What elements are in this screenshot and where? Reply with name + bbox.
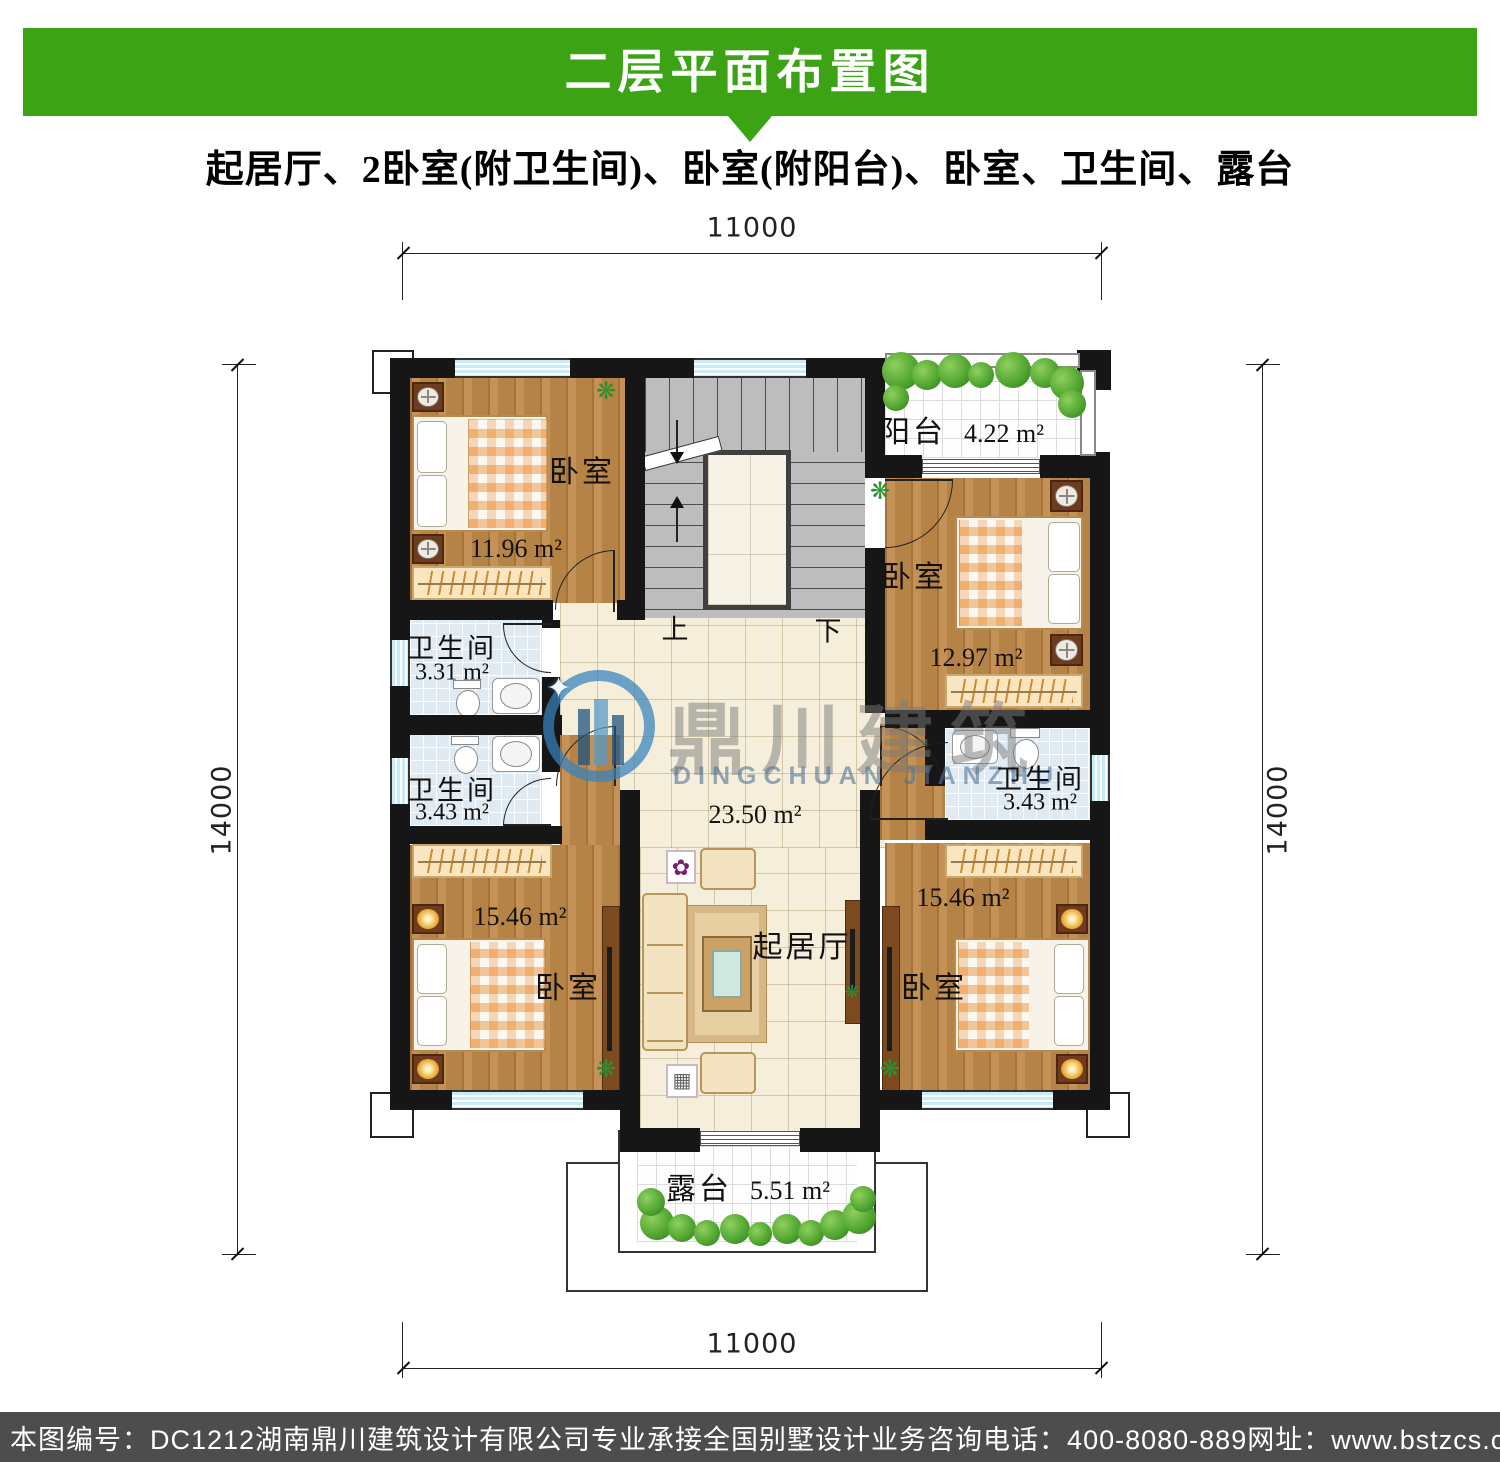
bed-blanket (958, 942, 1029, 1048)
wall-segment (583, 1090, 640, 1110)
page-title: 二层平面布置图 (23, 28, 1477, 116)
room-area-bathroom-right: 3.43 m² (1003, 790, 1077, 817)
logo-bar (594, 699, 608, 765)
watermark-logo: ✦ (543, 670, 655, 782)
lamp-glow-icon (417, 909, 439, 929)
wall-segment (390, 600, 553, 620)
sink-basin (500, 683, 532, 709)
bush (938, 354, 972, 388)
pillow (417, 475, 447, 527)
extension-line (222, 1254, 256, 1255)
door-leaf (613, 550, 615, 612)
logo-bar (612, 715, 624, 765)
wardrobe (412, 844, 552, 878)
nightstand (412, 534, 444, 564)
tv-screen (607, 947, 612, 1051)
window (694, 358, 806, 378)
window (1090, 755, 1110, 801)
room-area-bedroom-right: 12.97 m² (929, 643, 1022, 673)
room-name-bedroom-bottom-right: 卧室 (901, 963, 967, 1007)
bush (1058, 390, 1086, 418)
wardrobe-rod (951, 861, 1077, 863)
ceiling-lamp-icon (417, 539, 439, 559)
nightstand (1056, 1054, 1088, 1084)
armchair (700, 1052, 756, 1094)
stairs-up-label: 上 (662, 608, 689, 647)
flower-stand: ✿ (666, 850, 696, 884)
bush (748, 1222, 772, 1246)
balcony-label: 阳台 4.22 m² (880, 407, 1044, 451)
cabinet: ▦ (666, 1064, 698, 1098)
dimension-left: 14000 (207, 765, 238, 856)
stair-void (703, 450, 791, 610)
pillow (417, 996, 447, 1046)
pillow (1054, 944, 1084, 994)
nightstand (412, 382, 444, 412)
nightstand (1056, 904, 1088, 934)
plant-icon: ❋ (844, 983, 859, 1001)
title-banner: 二层平面布置图 (23, 28, 1477, 116)
sofa-cushions (647, 898, 683, 1046)
sparkle-icon: ✦ (546, 671, 571, 706)
bush (995, 352, 1031, 388)
room-area-bedroom-bottom-left: 15.46 m² (473, 902, 566, 932)
nightstand (1050, 634, 1083, 666)
toilet-tank (451, 736, 479, 745)
stair-direction-line (676, 420, 678, 454)
dimension-line (237, 365, 238, 1255)
ceiling-lamp-icon (1055, 639, 1078, 661)
sink (492, 736, 540, 772)
nightstand (1050, 480, 1083, 512)
drawing-number: 本图编号：DC1212 (10, 1418, 255, 1457)
wall-segment (390, 1090, 452, 1110)
wall-segment (620, 790, 640, 1135)
bed-blanket (470, 942, 545, 1048)
sliding-door (922, 459, 1040, 474)
wall-segment (625, 358, 645, 620)
phone-number: 咨询电话：400-8080-889 (927, 1418, 1247, 1457)
wardrobe (412, 566, 552, 600)
plant-icon: ❋ (596, 1058, 616, 1082)
wall-segment (865, 455, 922, 478)
dimension-top: 11000 (707, 213, 798, 244)
wardrobe (945, 844, 1083, 878)
dimension-line (403, 253, 1102, 254)
wall-segment (1053, 1090, 1110, 1110)
lamp-glow-icon (1061, 909, 1083, 929)
bush (694, 1220, 720, 1246)
footer-bar: 本图编号：DC1212 湖南鼎川建筑设计有限公司专业承接全国别墅设计业务 咨询电… (0, 1412, 1500, 1462)
pillow (1048, 574, 1080, 624)
bush (968, 362, 994, 388)
flower-icon: ✿ (672, 855, 690, 880)
wall-segment (860, 1090, 922, 1110)
plant-icon: ❋ (880, 1058, 900, 1082)
wall-segment (1040, 455, 1090, 478)
nightstand (412, 1054, 444, 1084)
stair-arrow-down-icon (670, 452, 684, 464)
pillow (1054, 996, 1084, 1046)
stair-direction-line (676, 508, 678, 542)
window (452, 1090, 583, 1110)
stair-treads-top (645, 378, 865, 452)
window (455, 358, 570, 378)
tv-screen (887, 947, 892, 1051)
room-area-terrace: 5.51 m² (750, 1176, 830, 1206)
sofa (642, 893, 688, 1051)
pillow (1048, 522, 1080, 572)
room-area-living: 23.50 m² (708, 800, 801, 830)
room-area-balcony: 4.22 m² (964, 419, 1044, 449)
plant-icon: ❋ (596, 380, 616, 404)
window (922, 1090, 1053, 1110)
room-area-bathroom-left-top: 3.31 m² (415, 660, 489, 687)
pillow (417, 421, 447, 473)
room-summary-subtitle: 起居厅、2卧室(附卫生间)、卧室(附阳台)、卧室、卫生间、露台 (0, 138, 1500, 193)
wall-segment (800, 1128, 880, 1152)
sink-basin (500, 741, 532, 767)
lamp-glow-icon (417, 1059, 439, 1079)
wardrobe-rod (418, 861, 546, 863)
wall-segment (390, 826, 562, 844)
wall-segment (925, 820, 1110, 840)
bed-blanket (959, 520, 1022, 626)
dimension-line (1262, 365, 1263, 1255)
appliance-icon: ▦ (673, 1070, 692, 1092)
bush (850, 1186, 876, 1212)
bush (668, 1214, 696, 1242)
sink (492, 678, 540, 714)
terrace-label: 露台 5.51 m² (666, 1164, 830, 1208)
ceiling-lamp-icon (1055, 485, 1078, 507)
wall-segment (860, 790, 880, 1135)
wall-segment (617, 600, 645, 620)
nightstand (412, 904, 444, 934)
room-area-bathroom-left-bottom: 3.43 m² (415, 800, 489, 827)
floor-plan-page: 二层平面布置图 起居厅、2卧室(附卫生间)、卧室(附阳台)、卧室、卫生间、露台 … (0, 0, 1500, 1462)
wall-segment (390, 715, 562, 735)
bush (637, 1188, 665, 1216)
door-leaf (870, 818, 948, 820)
ceiling-lamp-icon (417, 387, 439, 407)
room-name-balcony: 阳台 (880, 407, 946, 451)
room-name-bedroom-top-left: 卧室 (549, 447, 615, 491)
room-area-bedroom-top-left: 11.96 m² (470, 534, 562, 564)
door-leaf (503, 824, 551, 826)
company-name: 湖南鼎川建筑设计有限公司专业承接全国别墅设计业务 (255, 1418, 927, 1457)
logo-bar (578, 709, 590, 765)
sliding-door (700, 1131, 800, 1146)
armchair (700, 848, 756, 890)
room-name-bedroom-bottom-left: 卧室 (535, 963, 601, 1007)
coffee-table-glass (712, 950, 742, 998)
bush (720, 1214, 750, 1244)
wardrobe-rod (418, 583, 546, 585)
door-leaf (885, 479, 953, 481)
stair-arrow-up-icon (670, 496, 684, 508)
room-name-living: 起居厅 (753, 922, 852, 966)
bed-blanket (468, 419, 547, 528)
stairs-down-label: 下 (815, 610, 842, 649)
dimension-line (403, 1368, 1102, 1369)
room-area-bedroom-bottom-right: 15.46 m² (916, 883, 1009, 913)
room-name-bedroom-right: 卧室 (881, 552, 947, 596)
dimension-bottom: 11000 (707, 1329, 798, 1360)
door-leaf (503, 623, 551, 625)
lamp-glow-icon (1061, 1059, 1083, 1079)
dimension-right: 14000 (1263, 765, 1294, 856)
pillow (417, 944, 447, 994)
wall-segment (620, 1128, 700, 1152)
room-name-terrace: 露台 (666, 1164, 732, 1208)
website: 网址：www.bstzcs.com (1247, 1418, 1500, 1457)
